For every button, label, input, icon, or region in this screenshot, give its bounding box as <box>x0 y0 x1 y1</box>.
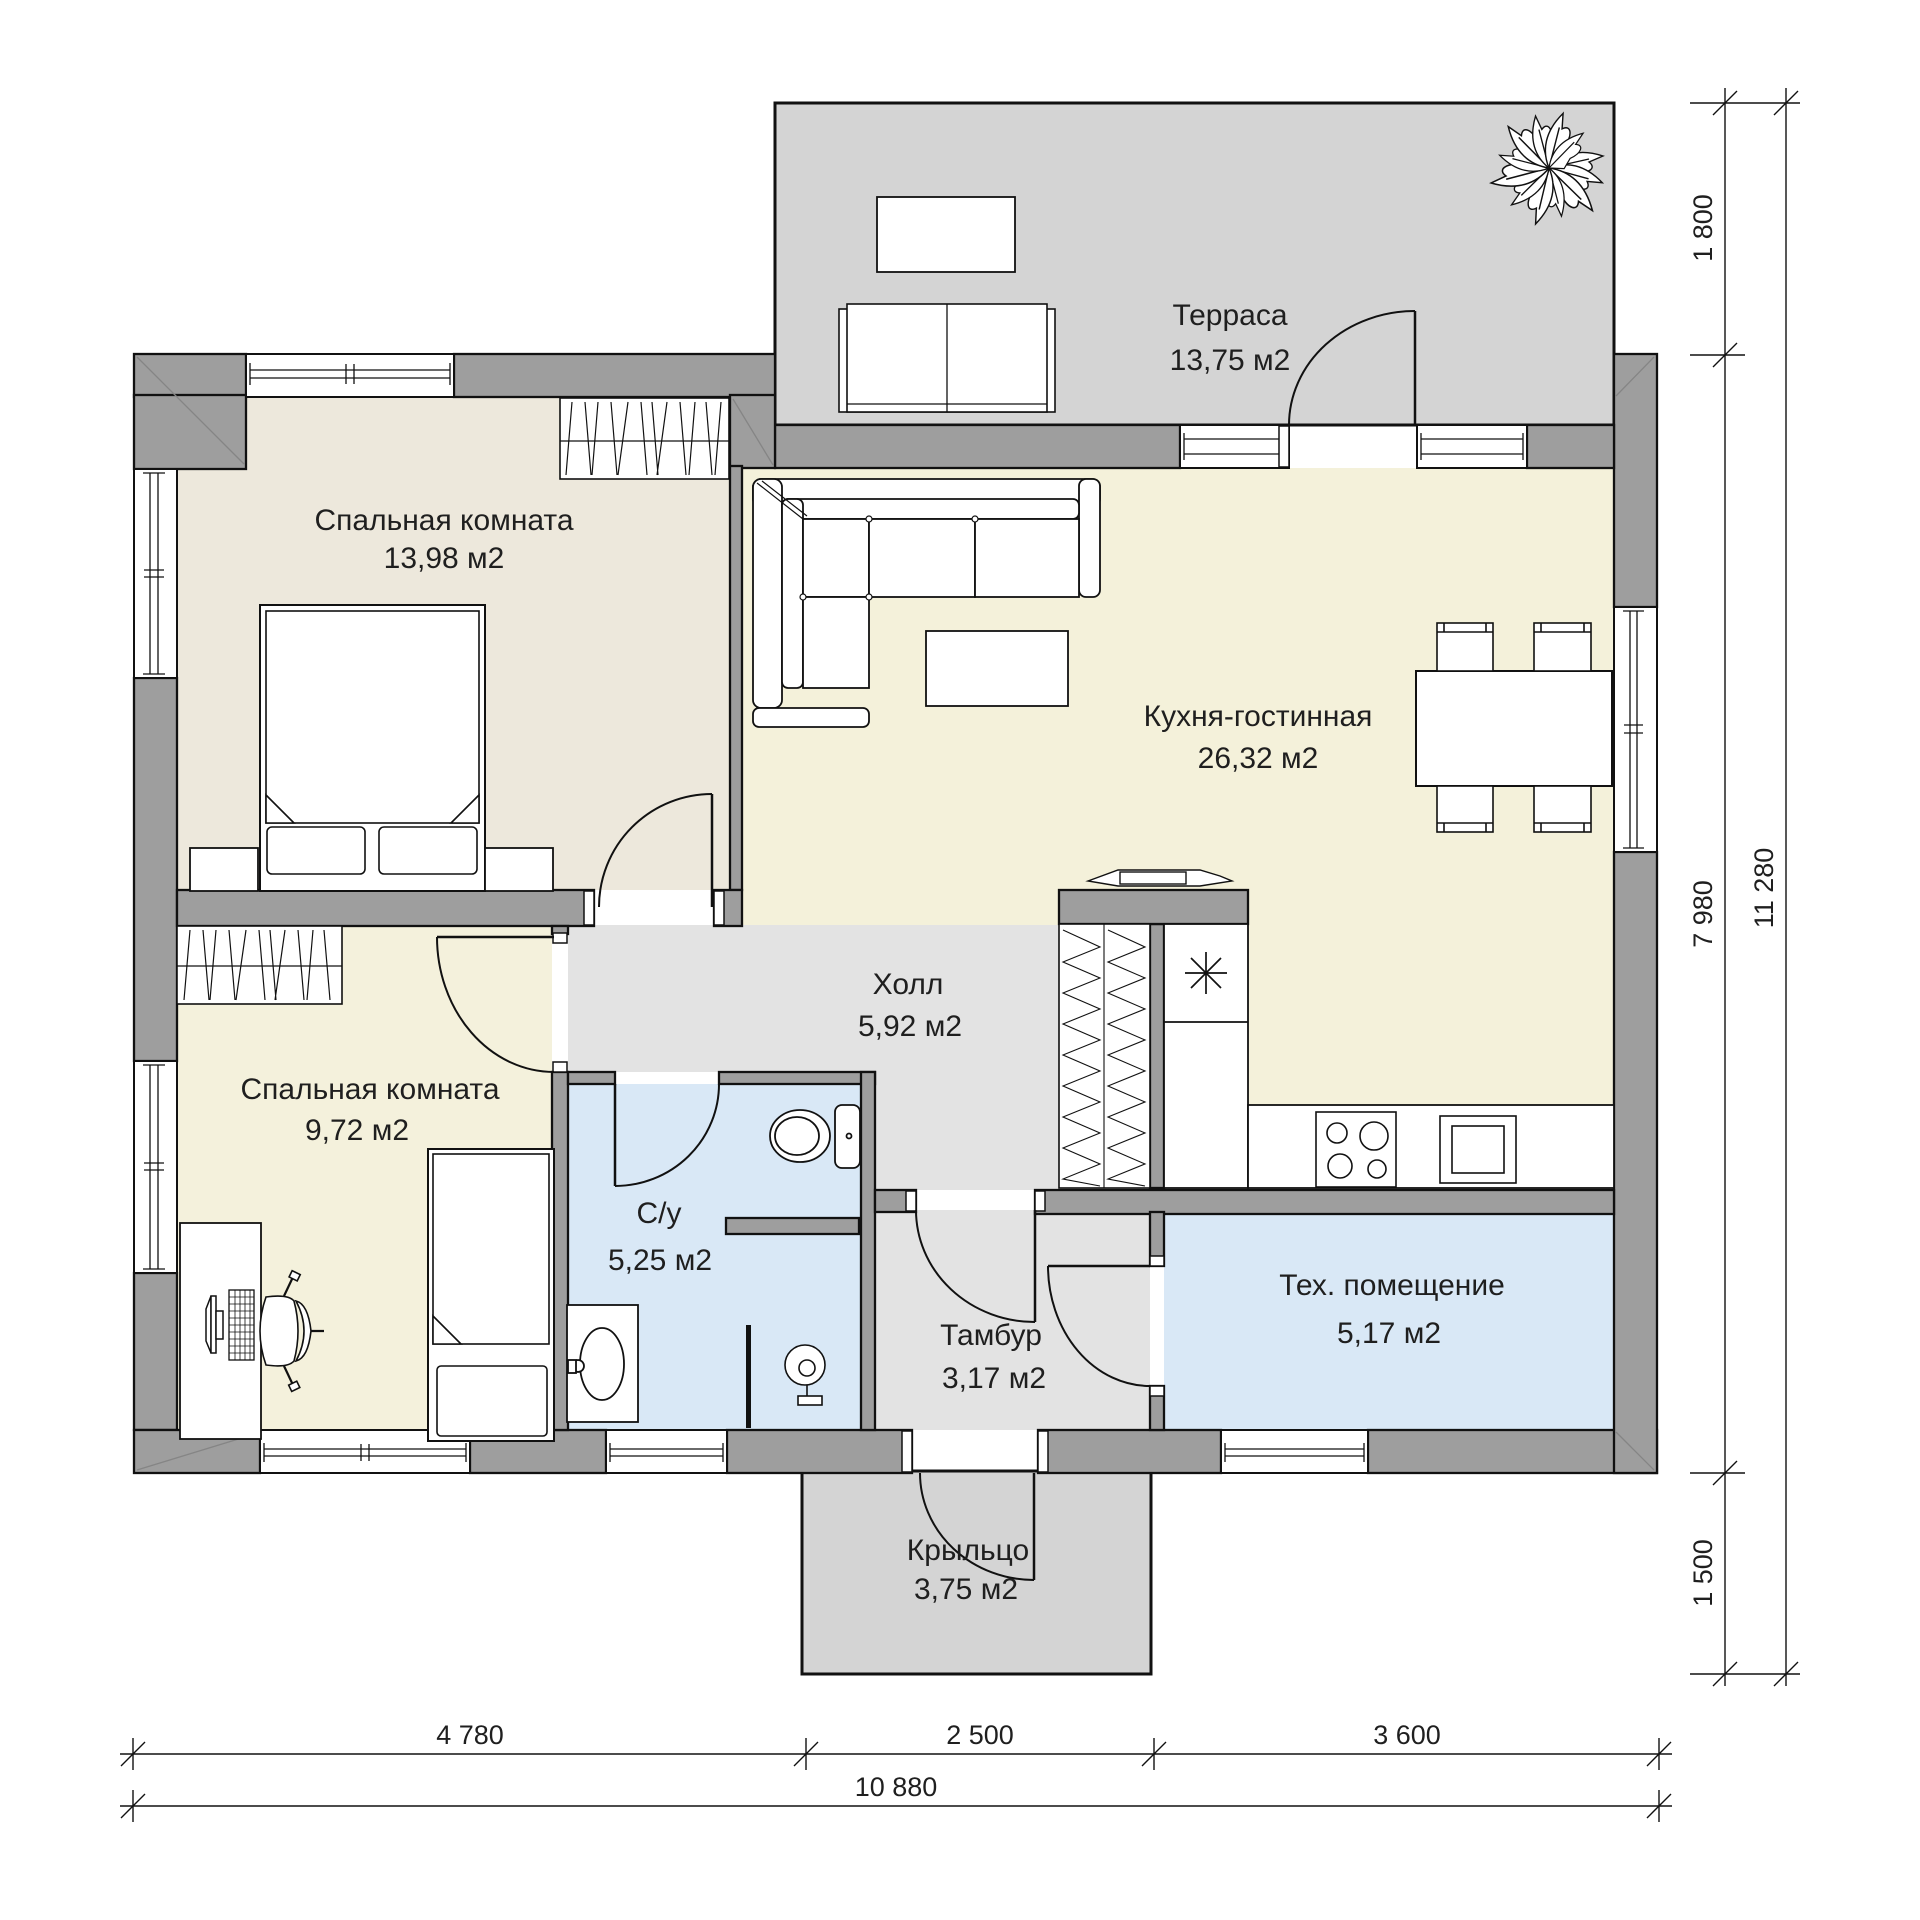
svg-text:3,75 м2: 3,75 м2 <box>914 1573 1018 1606</box>
svg-text:9,72 м2: 9,72 м2 <box>305 1114 409 1147</box>
svg-text:1 800: 1 800 <box>1688 194 1718 262</box>
svg-text:Кухня-гостинная: Кухня-гостинная <box>1144 700 1373 733</box>
svg-text:Тех. помещение: Тех. помещение <box>1279 1269 1505 1302</box>
svg-text:7 980: 7 980 <box>1688 880 1718 948</box>
svg-text:13,98 м2: 13,98 м2 <box>384 542 505 575</box>
svg-text:Терраса: Терраса <box>1172 299 1287 332</box>
svg-text:2 500: 2 500 <box>946 1720 1014 1750</box>
svg-text:5,25 м2: 5,25 м2 <box>608 1244 712 1277</box>
svg-text:Спальная комната: Спальная комната <box>240 1073 499 1106</box>
svg-text:Тамбур: Тамбур <box>940 1319 1042 1352</box>
svg-text:10 880: 10 880 <box>855 1772 938 1802</box>
svg-text:Крыльцо: Крыльцо <box>907 1534 1029 1567</box>
svg-text:4 780: 4 780 <box>436 1720 504 1750</box>
svg-text:11 280: 11 280 <box>1749 848 1779 929</box>
svg-text:1 500: 1 500 <box>1688 1539 1718 1607</box>
svg-text:13,75 м2: 13,75 м2 <box>1170 344 1291 377</box>
svg-text:5,92 м2: 5,92 м2 <box>858 1010 962 1043</box>
svg-text:Спальная комната: Спальная комната <box>314 504 573 537</box>
svg-text:3,17 м2: 3,17 м2 <box>942 1362 1046 1395</box>
svg-text:26,32 м2: 26,32 м2 <box>1198 742 1319 775</box>
svg-text:3 600: 3 600 <box>1373 1720 1441 1750</box>
svg-text:5,17 м2: 5,17 м2 <box>1337 1317 1441 1350</box>
svg-text:Холл: Холл <box>873 968 944 1001</box>
svg-text:С/у: С/у <box>637 1197 682 1230</box>
